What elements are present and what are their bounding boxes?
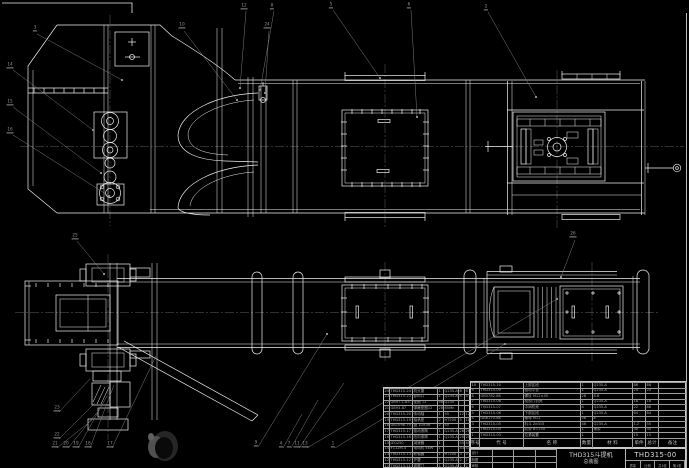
part-balloon: 11 [294,441,301,447]
part-balloon: 6 [407,2,411,8]
part-balloon: 5 [329,2,333,8]
sheet-name: 总装图 [583,459,598,465]
part-balloon: 1 [331,441,335,447]
takeup-screw [645,163,681,173]
head-access-panel [115,32,149,66]
part-balloon: 7 [287,441,291,447]
part-balloon: 23 [54,405,61,411]
part-balloon: 17 [107,441,114,447]
part-balloon: 24 [264,22,271,28]
bom-cell: 观察门 [413,463,438,468]
part-balloon: 3 [33,25,37,31]
bom-cell: Q235-A [444,463,459,468]
part-balloon: 12 [241,3,248,9]
drawing-number: THD315-00 [626,449,685,460]
part-balloon: 20 [63,441,70,447]
part-balloon: 25 [72,233,79,239]
signature-label: 审核 [471,463,493,468]
part-balloon: 4 [279,441,283,447]
drive-gear-stack [94,112,127,205]
part-balloon: 21 [52,441,59,447]
part-balloon: 10 [179,22,186,28]
part-balloon: 19 [73,441,80,447]
head-housing-plan [25,281,118,345]
title-block-footer: 质量比例共1张第1张 [626,460,685,468]
bom-table-right: 10THD315-10上部区段1Q235-A86869THD315-09驱动平台… [470,381,686,448]
signature-blank [514,463,536,468]
bom-cell: THD315-11 [390,463,413,468]
signature-blank [536,463,557,468]
boot-section-top [485,71,681,220]
top-view [28,25,681,221]
title-block-signature-grid: 设计制图审核 [471,449,557,468]
part-balloon: 15 [7,99,14,105]
title-block: 设计制图审核 THD315斗提机 总装图 THD315-00 质量比例共1张第1… [470,448,686,468]
bom-table-left: 24THD315-24机头罩1Q235-A6623THD315-23卸料口1Q2… [383,387,470,468]
drive-unit-plan [88,371,130,430]
cad-drawing-sheet: 3102412856214151625262322212019181794711… [0,0,689,468]
part-balloon: 18 [85,441,92,447]
part-balloon: 26 [570,231,577,237]
footer-field: 比例 [641,461,656,468]
part-balloon: 14 [7,62,14,68]
signature-blank [493,463,514,468]
discharge-chute [118,341,258,421]
footer-field: 第1张 [670,461,685,468]
bom-row: 11THD315-11观察门1Q235-A22 [384,463,469,468]
footer-field: 共1张 [655,461,670,468]
bucket-profiles [178,93,258,215]
part-balloon: 2 [484,4,488,10]
part-balloon: 9 [254,440,258,446]
part-balloon: 16 [7,127,14,133]
watermark-blob [148,431,178,461]
part-balloon: 8 [270,3,274,9]
footer-field: 质量 [626,461,641,468]
part-balloon: 13 [302,441,309,447]
part-balloon: 22 [54,432,61,438]
